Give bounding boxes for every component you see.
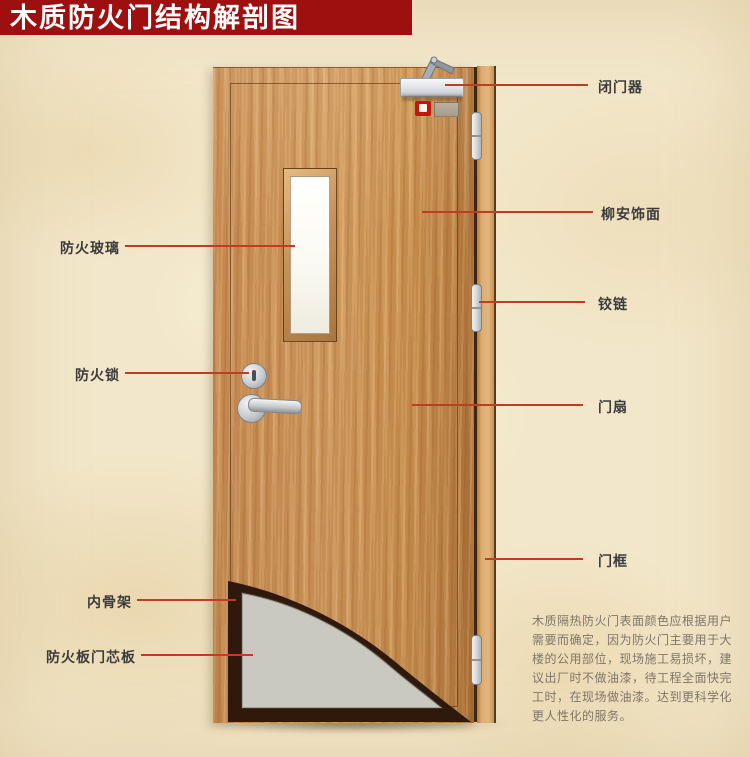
infographic-root: 木质防火门结构解剖图 闭门器 bbox=[0, 0, 750, 757]
leader-line-core-board bbox=[141, 654, 253, 656]
spec-label-plate bbox=[434, 102, 459, 117]
hinge-top bbox=[471, 112, 482, 160]
cutaway-section bbox=[213, 575, 475, 722]
page-title: 木质防火门结构解剖图 bbox=[0, 0, 412, 36]
hinge-middle bbox=[471, 284, 482, 332]
leader-line-fire-glass bbox=[125, 245, 295, 247]
label-inner-skeleton: 内骨架 bbox=[32, 592, 132, 612]
description-line: 工时，在现场做油漆。达到更科学化 bbox=[532, 688, 746, 707]
label-fire-lock: 防火锁 bbox=[20, 365, 120, 385]
label-veneer: 柳安饰面 bbox=[601, 204, 661, 224]
label-hinge: 铰链 bbox=[598, 294, 628, 314]
description-line: 木质隔热防火门表面颜色应根据用户 bbox=[532, 612, 746, 631]
description-line: 更人性化的服务。 bbox=[532, 707, 746, 726]
leader-line-door-closer bbox=[445, 84, 588, 86]
label-core-board: 防火板门芯板 bbox=[36, 647, 136, 667]
door-frame bbox=[477, 66, 496, 723]
title-banner: 木质防火门结构解剖图 bbox=[0, 0, 412, 35]
description-text: 木质隔热防火门表面颜色应根据用户 需要而确定，因为防火门主要用于大 楼的公用部位… bbox=[532, 612, 746, 726]
leader-line-inner-skeleton bbox=[137, 599, 236, 601]
core-panel-shape bbox=[242, 593, 442, 708]
label-door-frame: 门框 bbox=[598, 551, 628, 571]
leader-line-door-frame bbox=[485, 558, 583, 560]
label-door-closer: 闭门器 bbox=[598, 77, 643, 97]
brand-sticker-center bbox=[419, 104, 427, 112]
leader-line-fire-lock bbox=[125, 372, 249, 374]
door-closer-shadow bbox=[402, 95, 462, 101]
glass-pane bbox=[290, 176, 330, 334]
description-line: 楼的公用部位，现场施工易损坏，建 bbox=[532, 650, 746, 669]
label-door-leaf: 门扇 bbox=[598, 397, 628, 417]
brand-sticker bbox=[415, 101, 431, 116]
label-fire-glass: 防火玻璃 bbox=[20, 238, 120, 258]
leader-line-veneer bbox=[422, 211, 593, 213]
fire-glass-window bbox=[283, 168, 337, 342]
description-line: 需要而确定，因为防火门主要用于大 bbox=[532, 631, 746, 650]
leader-line-hinge bbox=[479, 301, 585, 303]
fire-lock-cylinder bbox=[241, 363, 267, 389]
keyhole-slot bbox=[252, 370, 256, 381]
leader-line-door-leaf bbox=[412, 404, 583, 406]
description-line: 议出厂时不做油漆，待工程全面快完 bbox=[532, 669, 746, 688]
fire-lock-handle bbox=[248, 398, 303, 415]
